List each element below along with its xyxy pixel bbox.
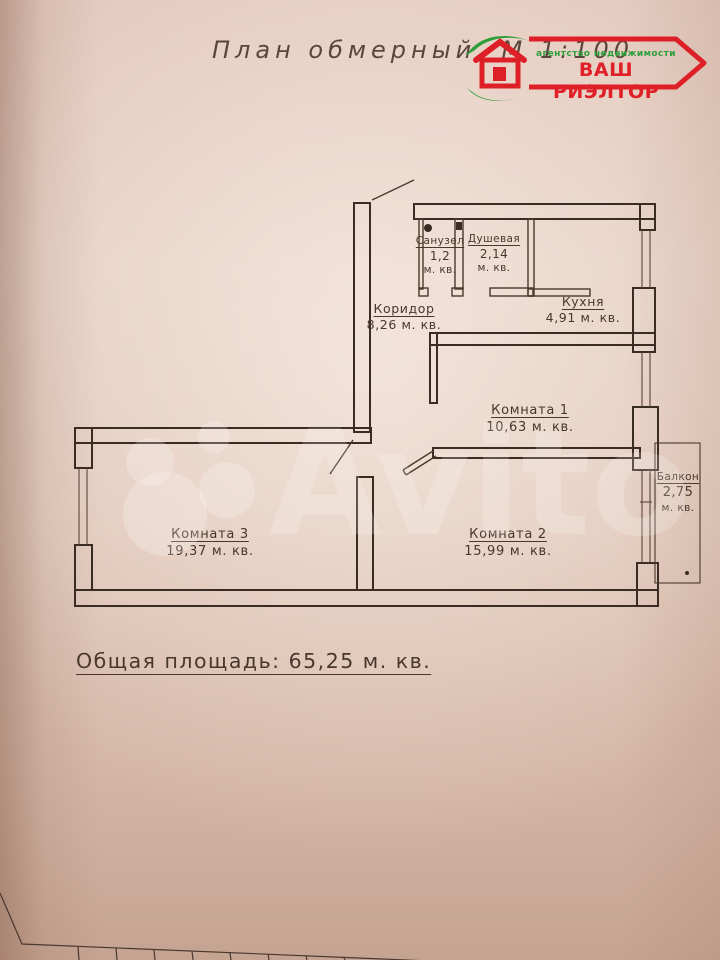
table-tick (78, 947, 79, 960)
right-wall-block-3 (633, 407, 658, 470)
table-tick (268, 954, 269, 960)
room-label-balkon: Балкон 2,75 м. кв. (657, 471, 699, 515)
room-area: 8,26 м. кв. (367, 317, 442, 333)
room-name: Балкон (657, 471, 699, 485)
room-area: 2,14 (468, 247, 520, 263)
kitchen-room1-divider-wall (430, 333, 655, 345)
room1-bottom-wall (433, 448, 640, 458)
table-tick (306, 956, 307, 960)
room-label-koridor: Коридор 8,26 м. кв. (367, 301, 442, 334)
ventilation-dot (424, 224, 432, 232)
divider-top-tick (456, 222, 462, 230)
room-label-sanuzel: Санузел 1,2 м. кв. (416, 235, 464, 278)
room-label-komnata2: Комната 2 15,99 м. кв. (464, 527, 551, 561)
room-label-kuhnya: Кухня 4,91 м. кв. (546, 294, 621, 327)
room-name: Коридор (367, 301, 442, 317)
scanned-floor-plan-page: План обмерный. М 1:100 Санузел 1,2 м. кв… (0, 0, 720, 960)
house-icon (476, 42, 524, 86)
room2-door-leaf-end (403, 470, 406, 475)
balcony-dot (685, 571, 689, 575)
windows (79, 230, 652, 563)
dushevaya-right-wall (528, 219, 534, 296)
dushevaya-bottom-wall (490, 288, 533, 296)
table-edge-line (0, 893, 430, 960)
entrance-door-swing (372, 180, 414, 200)
room-area: 10,63 м. кв. (486, 420, 573, 437)
room-name: Душевая (468, 233, 520, 247)
table-tick (192, 951, 193, 960)
room-unit: м. кв. (416, 264, 464, 278)
room-unit: м. кв. (468, 262, 520, 276)
logo-brand-name: ВАШ РИЭЛТОР (526, 59, 686, 103)
floor-plan-drawing (0, 0, 720, 960)
right-wall-block-1 (640, 204, 655, 230)
left-wall-block-bottom (75, 545, 92, 590)
table-tick (154, 950, 155, 960)
room-area: 4,91 м. кв. (546, 310, 621, 326)
room-unit: м. кв. (657, 502, 699, 516)
logo-tagline: агентство недвижимости (528, 49, 684, 59)
room3-door-swing (330, 440, 353, 474)
bottom-outer-wall (75, 590, 658, 606)
room3-room2-divider-wall (357, 477, 373, 590)
room-name: Комната 1 (486, 403, 573, 420)
room-name: Комната 3 (166, 527, 253, 544)
room-label-dushevaya: Душевая 2,14 м. кв. (468, 233, 520, 276)
left-wall-block-top (75, 428, 92, 468)
table-tick (230, 953, 231, 960)
room-area: 19,37 м. кв. (166, 544, 253, 561)
room-area: 1,2 (416, 249, 464, 265)
room-area: 15,99 м. кв. (464, 544, 551, 561)
room-name: Санузел (416, 235, 464, 249)
realtor-logo: агентство недвижимости ВАШ РИЭЛТОР (462, 30, 718, 102)
room-name: Кухня (546, 294, 621, 310)
room3-top-wall (75, 428, 371, 443)
top-outer-wall (414, 204, 655, 219)
next-page-table-edge (0, 893, 430, 960)
room-area: 2,75 (657, 485, 699, 502)
room1-left-wall (430, 333, 437, 403)
room-label-komnata1: Комната 1 10,63 м. кв. (486, 403, 573, 437)
right-wall-block-2 (633, 288, 655, 352)
table-tick (116, 948, 117, 960)
room-label-komnata3: Комната 3 19,37 м. кв. (166, 527, 253, 561)
total-area-text: Общая площадь: 65,25 м. кв. (76, 649, 431, 673)
room-name: Комната 2 (464, 527, 551, 544)
